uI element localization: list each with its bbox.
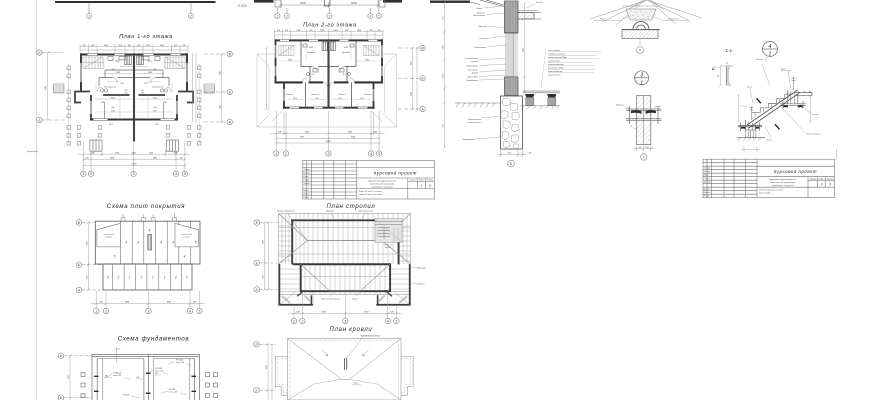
svg-text:Спальня: Спальня [338, 94, 346, 96]
svg-text:Стойка: Стойка [812, 113, 819, 116]
svg-text:2980: 2980 [147, 72, 152, 74]
svg-text:Лист: Лист [418, 180, 424, 182]
svg-text:3130: 3130 [111, 110, 115, 112]
svg-text:600: 600 [155, 373, 158, 375]
svg-text:Разраб: Разраб [304, 197, 309, 199]
svg-text:2: 2 [174, 276, 177, 280]
svg-text:2: 2 [89, 172, 92, 176]
svg-text:2070: 2070 [359, 98, 364, 100]
svg-text:Кобылка: Кобылка [756, 59, 763, 61]
svg-text:фартук: фартук [472, 72, 478, 75]
svg-text:Кухня: Кухня [115, 61, 121, 63]
svg-text:4: 4 [370, 152, 372, 156]
svg-text:А: А [77, 288, 80, 292]
svg-text:2070: 2070 [108, 124, 113, 126]
svg-text:1: 1 [164, 276, 166, 280]
svg-text:2: 2 [285, 14, 288, 18]
svg-text:Плита площадки: Плита площадки [806, 133, 821, 136]
svg-text:разрез 1:1 план 2-го этажа: разрез 1:1 план 2-го этажа [358, 194, 382, 196]
svg-text:1500: 1500 [443, 74, 445, 78]
svg-text:11.8: 11.8 [343, 74, 346, 76]
svg-text:890: 890 [125, 90, 128, 92]
svg-text:4: 4 [125, 241, 127, 245]
svg-text:6: 6 [639, 49, 641, 53]
svg-text:1100: 1100 [443, 124, 445, 128]
svg-text:Вентиляционный канал: Вентиляционный канал [360, 334, 379, 337]
svg-text:1-1: 1-1 [725, 48, 732, 53]
svg-text:квартирами в дер.уровне: квартирами в дер.уровне [371, 185, 393, 188]
svg-text:5: 5 [195, 241, 197, 245]
svg-text:2: 2 [284, 152, 287, 156]
svg-text:3: 3 [107, 276, 109, 280]
svg-text:Доска: Доска [780, 69, 786, 71]
svg-text:Обратная засып: Обратная засып [468, 119, 482, 121]
svg-text:Б: Б [78, 263, 80, 267]
svg-text:1: 1 [129, 276, 131, 280]
svg-text:Прогон ГВЛ-1: Прогон ГВЛ-1 [467, 77, 478, 79]
svg-text:узлы 1 2 3 4 5: узлы 1 2 3 4 5 [758, 192, 771, 195]
svg-text:грунтом песчан: грунтом песчан [468, 122, 481, 124]
svg-text:3: 3 [344, 319, 346, 323]
svg-text:3980: 3980 [288, 59, 292, 61]
svg-text:4: 4 [184, 255, 186, 259]
svg-text:4: 4 [160, 241, 162, 245]
svg-text:600: 600 [137, 377, 140, 379]
svg-text:Двухэтажный Двухквартирный: Двухэтажный Двухквартирный [768, 178, 796, 181]
svg-text:Детская: Детская [306, 52, 315, 54]
svg-text:Изменил: Изменил [304, 194, 311, 196]
svg-text:Б: Б [60, 396, 62, 400]
svg-text:3060: 3060 [68, 375, 70, 379]
svg-text:Схема плит покрытия: Схема плит покрытия [107, 204, 185, 210]
svg-text:Н.контр: Н.контр [304, 173, 310, 175]
svg-text:1: 1 [95, 309, 97, 313]
svg-text:4: 4 [137, 241, 139, 245]
svg-text:жилой дом с 4-х комнатными: жилой дом с 4-х комнатными [369, 182, 395, 185]
svg-text:Лист: Лист [818, 178, 824, 180]
svg-text:План 2-го этажа: План 2-го этажа [303, 23, 357, 29]
svg-text:б: б [643, 156, 645, 160]
svg-text:вкладыш: вкладыш [471, 60, 479, 63]
svg-text:Разраб: Разраб [704, 196, 709, 198]
svg-text:4: 4 [189, 309, 191, 313]
svg-text:3070: 3070 [111, 97, 115, 99]
svg-text:2980: 2980 [343, 47, 348, 49]
svg-text:Рук.пр: Рук.пр [704, 175, 709, 177]
svg-text:Курсовой проект: Курсовой проект [774, 169, 817, 174]
svg-text:А: А [421, 107, 424, 111]
svg-text:1: 1 [640, 81, 643, 87]
svg-text:монолитный: монолитный [182, 233, 192, 236]
svg-text:2980: 2980 [115, 72, 120, 74]
svg-text:в/о: в/о [118, 349, 120, 351]
svg-text:участок: участок [182, 237, 190, 239]
svg-text:Мауэрлат: Мауэрлат [326, 211, 335, 213]
svg-text:Засыпка: Засыпка [536, 2, 543, 4]
svg-text:890: 890 [141, 90, 144, 92]
svg-text:4: 4 [769, 44, 772, 50]
svg-text:отм -1.45: отм -1.45 [169, 391, 177, 394]
svg-text:3070: 3070 [153, 97, 157, 99]
svg-text:Подоконник: Подоконник [480, 37, 490, 40]
svg-text:3: 3 [821, 183, 823, 187]
svg-text:4: 4 [370, 14, 372, 18]
svg-text:2980: 2980 [308, 47, 313, 49]
svg-text:Косоур: Косоур [766, 140, 772, 142]
svg-text:Кобылка: Кобылка [418, 284, 425, 286]
svg-text:5: 5 [378, 14, 380, 18]
svg-text:отм -1.45: отм -1.45 [113, 374, 121, 377]
svg-text:Кухня: Кухня [147, 61, 153, 63]
svg-text:Детская: Детская [341, 52, 350, 54]
svg-text:Листов: Листов [426, 180, 433, 182]
svg-text:Б: Б [256, 261, 258, 265]
svg-text:3120: 3120 [338, 98, 342, 100]
svg-text:50: 50 [726, 63, 728, 65]
svg-text:Прогон: Прогон [352, 299, 358, 301]
svg-text:3: 3 [429, 184, 431, 188]
svg-text:3060: 3060 [266, 365, 268, 369]
svg-text:Т.контр: Т.контр [304, 169, 310, 171]
svg-text:1: 1 [82, 172, 84, 176]
svg-text:Мауэрлат: Мауэрлат [418, 268, 427, 270]
svg-text:5: 5 [395, 319, 397, 323]
svg-text:2: 2 [116, 276, 119, 280]
svg-text:А: А [228, 120, 231, 124]
svg-text:Т.контр: Т.контр [704, 168, 710, 170]
svg-text:Н.контр: Н.контр [704, 171, 710, 173]
svg-text:Утеплитель: Утеплитель [668, 19, 679, 21]
svg-text:сливная плита: сливная плита [473, 15, 485, 17]
svg-text:Кобылка стропильная: Кобылка стропильная [277, 211, 295, 213]
svg-text:1.05: 1.05 [140, 93, 143, 95]
svg-text:3: 3 [327, 152, 329, 156]
svg-text:сухая подсыпка: сухая подсыпка [548, 74, 561, 77]
svg-text:Гидроизоляция: Гидроизоляция [466, 79, 478, 82]
svg-text:Спальня: Спальня [286, 94, 294, 96]
svg-text:3: 3 [133, 172, 135, 176]
svg-text:-0.020: -0.020 [237, 4, 247, 8]
svg-text:2200: 2200 [523, 48, 525, 53]
svg-text:Б: Б [229, 90, 231, 94]
svg-text:5: 5 [378, 152, 380, 156]
svg-text:3130: 3130 [153, 110, 157, 112]
svg-text:Изменил: Изменил [704, 192, 711, 194]
svg-text:120: 120 [639, 147, 642, 149]
svg-text:3: 3 [640, 73, 643, 79]
svg-text:1,05: 1,05 [111, 69, 114, 71]
svg-text:3060: 3060 [87, 242, 89, 246]
svg-text:Отделочный: Отделочный [468, 69, 478, 72]
svg-text:Бриг.из: Бриг.из [704, 189, 710, 191]
svg-text:2740: 2740 [86, 276, 89, 281]
svg-text:1: 1 [275, 152, 277, 156]
svg-text:План стропил: План стропил [326, 204, 375, 210]
svg-text:1: 1 [277, 14, 279, 18]
svg-text:Спальня: Спальня [311, 94, 319, 96]
svg-text:1.05: 1.05 [124, 93, 127, 95]
svg-text:2: 2 [104, 309, 107, 313]
svg-text:3: 3 [329, 14, 331, 18]
svg-text:1: 1 [152, 276, 154, 280]
svg-text:Фасад 1:5 план 1-го этажа: Фасад 1:5 план 1-го этажа [359, 190, 382, 193]
svg-text:2070: 2070 [292, 98, 297, 100]
svg-text:3: 3 [829, 183, 831, 187]
svg-text:20: 20 [630, 126, 633, 128]
svg-text:2070: 2070 [154, 124, 159, 126]
svg-text:Курсовой проект: Курсовой проект [374, 171, 417, 176]
svg-text:3060: 3060 [263, 240, 265, 244]
svg-text:Кровля: Кровля [476, 8, 482, 10]
svg-text:кровлю: кровлю [385, 247, 391, 249]
svg-text:2120: 2120 [119, 83, 124, 85]
svg-text:Гл.спец: Гл.спец [704, 178, 710, 180]
svg-text:11.8: 11.8 [312, 74, 315, 76]
svg-text:Рук.пр: Рук.пр [304, 176, 309, 178]
svg-text:1: 1 [88, 14, 90, 18]
svg-text:балки деревянные: балки деревянные [548, 70, 563, 73]
svg-text:Б: Б [422, 77, 424, 81]
svg-text:участок: участок [104, 237, 112, 239]
svg-text:4: 4 [172, 241, 174, 245]
svg-text:Гидроизоляция: Гидроизоляция [466, 65, 478, 68]
svg-text:1: 1 [140, 276, 142, 280]
svg-text:4: 4 [387, 319, 389, 323]
svg-text:отм -1.45: отм -1.45 [155, 370, 163, 373]
svg-text:Теплоизоляция: Теплоизоляция [474, 47, 486, 49]
svg-text:120: 120 [646, 147, 649, 149]
svg-text:2740: 2740 [262, 275, 265, 280]
svg-text:А: А [37, 118, 40, 122]
svg-text:4: 4 [149, 229, 151, 233]
svg-text:Схема фундаментов: Схема фундаментов [118, 337, 190, 343]
svg-text:План 1-го этажа: План 1-го этажа [119, 34, 173, 40]
svg-text:Перемычка: Перемычка [478, 26, 487, 28]
svg-text:3: 3 [186, 276, 188, 280]
svg-text:Спальня: Спальня [364, 94, 372, 96]
svg-text:Листов: Листов [826, 178, 833, 180]
svg-text:Стропильная нога: Стропильная нога [358, 211, 373, 213]
svg-text:2: 2 [189, 14, 192, 18]
svg-text:Балка: Балка [747, 87, 752, 89]
svg-text:3980: 3980 [365, 59, 369, 61]
svg-text:4: 4 [175, 172, 177, 176]
svg-text:ФЛ 6.24: ФЛ 6.24 [123, 394, 129, 397]
svg-text:1: 1 [420, 184, 422, 188]
svg-text:Балка: Балка [656, 106, 661, 108]
svg-text:А: А [255, 288, 258, 292]
svg-text:1,05: 1,05 [153, 69, 156, 71]
svg-text:Гидроизоляция: Гидроизоляция [462, 138, 474, 141]
svg-text:5: 5 [114, 255, 116, 259]
svg-text:отм -1.45: отм -1.45 [176, 361, 184, 364]
svg-text:Двухэтажный Двухквартирный: Двухэтажный Двухквартирный [368, 180, 396, 183]
svg-text:квартирами в дер.уровне: квартирами в дер.уровне [772, 184, 794, 187]
svg-text:План кровли: План кровли [330, 327, 373, 333]
svg-text:Гл.спец: Гл.спец [303, 180, 309, 182]
svg-text:гидроизоляция: гидроизоляция [548, 60, 560, 63]
svg-text:3.00: 3.00 [443, 16, 445, 20]
svg-text:монолитный: монолитный [103, 233, 113, 236]
svg-text:6060: 6060 [300, 1, 306, 5]
svg-text:Накат: Накат [600, 19, 606, 21]
svg-text:2120: 2120 [143, 83, 148, 85]
svg-text:510: 510 [508, 153, 511, 155]
svg-text:5: 5 [184, 172, 186, 176]
svg-text:Б: Б [255, 389, 257, 393]
svg-text:пенополистирол: пенополистирол [465, 58, 478, 60]
svg-text:600: 600 [105, 376, 108, 378]
svg-text:1: 1 [293, 319, 295, 323]
svg-text:Изоляция: Изоляция [616, 105, 624, 107]
svg-text:2: 2 [300, 319, 303, 323]
svg-text:1: 1 [769, 51, 772, 57]
svg-text:Гог.комната: Гог.комната [104, 87, 117, 89]
svg-text:5: 5 [198, 309, 200, 313]
svg-text:Детальный разрез по стене: Детальный разрез по стене [758, 189, 783, 192]
svg-text:Гог.комната: Гог.комната [152, 87, 165, 89]
svg-text:6060: 6060 [351, 1, 357, 5]
svg-text:120: 120 [528, 153, 531, 155]
svg-text:жилой дом с 4-х комнатными: жилой дом с 4-х комнатными [769, 181, 795, 184]
svg-text:3120: 3120 [315, 98, 319, 100]
svg-text:1500: 1500 [443, 45, 445, 49]
svg-text:Нарожник стропильный: Нарожник стропильный [321, 298, 340, 301]
svg-text:160: 160 [718, 75, 720, 78]
svg-text:3: 3 [147, 309, 149, 313]
svg-text:Бриг.из: Бриг.из [304, 190, 310, 192]
